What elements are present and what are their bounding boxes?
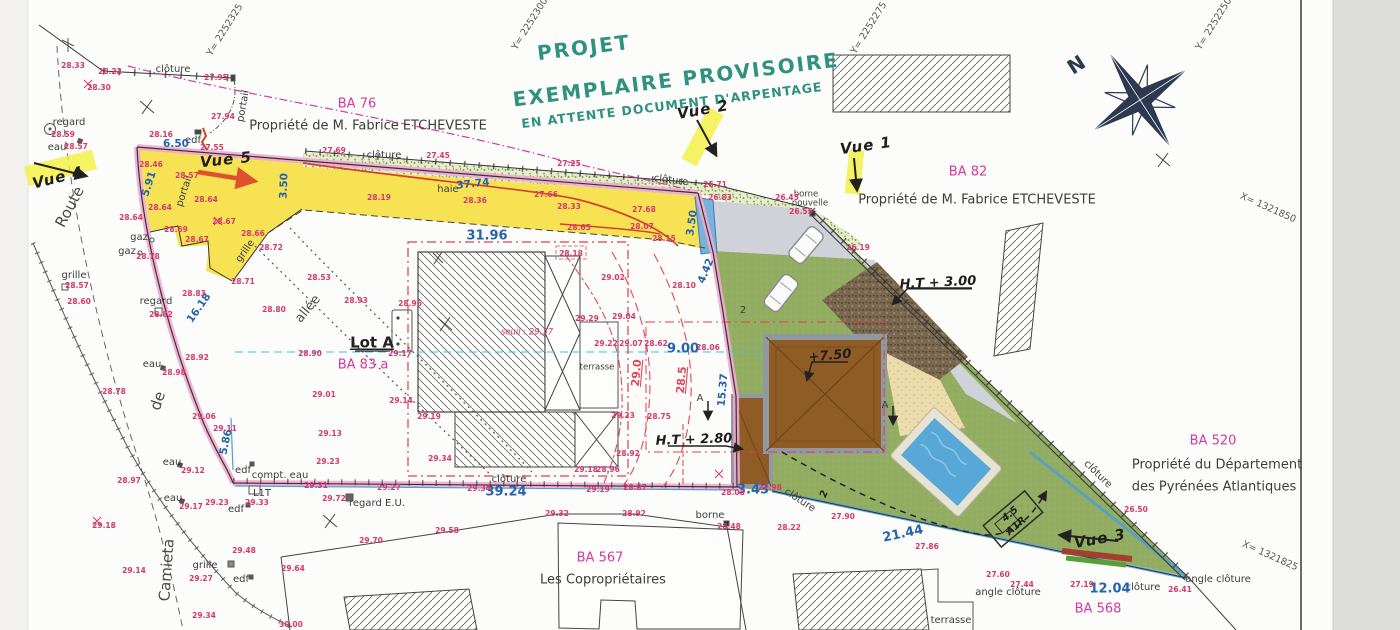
label-29-06: 29.06 (192, 412, 216, 421)
building-top-hatched (833, 55, 1010, 112)
label-28-06: 28.06 (696, 343, 720, 352)
label-28-57: 28.57 (64, 142, 88, 151)
label-28-33: 28.33 (61, 61, 85, 70)
label-26-55: 26.55 (789, 207, 813, 216)
label-28-08: 28.08 (721, 488, 745, 497)
label-29-48: 29.48 (232, 546, 256, 555)
label-ba-82: BA 82 (949, 165, 988, 180)
label-29-01: 29.01 (312, 390, 336, 399)
label-ba-83-a: BA 83 a (338, 358, 389, 373)
label-26-83: 26.83 (708, 193, 732, 202)
label-27-19: 27.19 (1070, 580, 1094, 589)
label-29-33: 29.33 (245, 498, 269, 507)
label-29-34: 29.34 (192, 611, 216, 620)
label-28-16: 28.16 (149, 130, 173, 139)
label-ba-567: BA 567 (577, 551, 624, 566)
label-28-69: 28.69 (164, 225, 188, 234)
label-28-67: 28.67 (185, 235, 209, 244)
label-29-19: 29.19 (586, 485, 610, 494)
label-28-83: 28.83 (182, 289, 206, 298)
label-28-78: 28.78 (102, 387, 126, 396)
label-28-30: 28.30 (87, 83, 111, 92)
scanned-survey-plan: PROJET EXEMPLAIRE PROVISOIRE EN ATTENTE … (0, 0, 1400, 630)
label-a: A (697, 393, 704, 404)
label-29-34: 29.34 (467, 484, 491, 493)
label-compt-eau: compt. eau (252, 470, 309, 481)
label-28-66: 28.66 (241, 229, 265, 238)
label-h-t-2-80: H.T + 2.80 (655, 431, 732, 449)
label-29-17: 29.17 (179, 502, 203, 511)
label-2: 2 (740, 305, 746, 316)
label-27-95: 27.95 (204, 73, 228, 82)
label-28-19: 28.19 (367, 193, 391, 202)
label-27-69: 27.69 (322, 146, 346, 155)
label-28-96: 28.96 (596, 465, 620, 474)
label-29-02: 29.02 (601, 273, 625, 282)
scan-edge-strip (1333, 0, 1400, 630)
label-gaz: gaz (118, 246, 136, 257)
label-28-96: 28.96 (398, 299, 422, 308)
label-28-90: 28.90 (298, 349, 322, 358)
label-29-14: 29.14 (122, 566, 146, 575)
label-regard: regard (140, 296, 173, 307)
label-29-0: 29.0 (629, 359, 644, 388)
label-29-29: 29.29 (575, 314, 599, 323)
label-29-23: 29.23 (205, 498, 229, 507)
label-28-92: 28.92 (616, 449, 640, 458)
label-29-07: 29.07 (619, 339, 643, 348)
label-des-pyr-n-es-atlantiques: des Pyrénées Atlantiques (1132, 480, 1297, 495)
label-edf: edf (235, 465, 252, 476)
label-28-92: 28.92 (185, 353, 209, 362)
label-29-72: 29.72 (322, 494, 346, 503)
label-angle-cl-ture: angle clôture (1185, 573, 1251, 585)
label-propri-t-de-m-fabrice-etcheveste: Propriété de M. Fabrice ETCHEVESTE (249, 119, 487, 134)
label-27-98: 27.98 (758, 483, 782, 492)
label-31-96: 31.96 (466, 229, 507, 244)
label-28-53: 28.53 (307, 273, 331, 282)
label-borne: borne (696, 510, 725, 521)
entry-porch (392, 310, 412, 352)
label-28-57: 28.57 (175, 171, 199, 180)
grille-icon (228, 561, 234, 567)
label-28-64: 28.64 (148, 203, 172, 212)
label-29-58: 29.58 (435, 526, 459, 535)
label-28-22: 28.22 (777, 523, 801, 532)
label-26-19: 26.19 (846, 243, 870, 252)
label-cl-ture: clôture (367, 149, 402, 161)
label-28-64: 28.64 (194, 195, 218, 204)
edf-icon (249, 575, 253, 579)
label-6-50: 6.50 (163, 138, 189, 150)
label-a: A (882, 400, 889, 411)
label-28-98: 28.98 (162, 368, 186, 377)
label-seuil-29-37: seuil : 29.37 (501, 328, 554, 338)
label-27-25: 27.25 (557, 159, 581, 168)
label-29-18: 29.18 (574, 465, 598, 474)
building-ba568-hatched (793, 569, 929, 630)
label-27-66: 27.66 (534, 190, 558, 199)
gate-post-icon (231, 75, 235, 81)
label-28-65: 28.65 (567, 223, 591, 232)
label-28-87: 28.87 (623, 483, 647, 492)
label-eau: eau (163, 457, 182, 468)
label-edf: edf (233, 574, 250, 585)
label-propri-t-de-m-fabrice-etcheveste: Propriété de M. Fabrice ETCHEVESTE (858, 193, 1096, 208)
label-28-18: 28.18 (559, 249, 583, 258)
label-29-13: 29.13 (318, 429, 342, 438)
label-gaz: gaz (130, 232, 148, 243)
label-27-60: 27.60 (986, 570, 1010, 579)
label-9-00: 9.00 (667, 342, 699, 357)
label-ba-520: BA 520 (1190, 434, 1237, 449)
label-28-10: 28.10 (672, 281, 696, 290)
label-28-22: 28.22 (98, 67, 122, 76)
label-28-97: 28.97 (117, 476, 141, 485)
label-27-45: 27.45 (426, 151, 450, 160)
label-28-59: 28.59 (51, 130, 75, 139)
label-regard: regard (53, 117, 86, 128)
label-27-90: 27.90 (831, 512, 855, 521)
label-26-41: 26.41 (1168, 585, 1192, 594)
label-28-78: 28.78 (136, 252, 160, 261)
label-12-04: 12.04 (1089, 582, 1130, 597)
label-29-27: 29.27 (189, 574, 213, 583)
label-28-71: 28.71 (231, 277, 255, 286)
label-29-17: 29.17 (388, 349, 412, 358)
label-29-34: 29.34 (428, 454, 452, 463)
label-29-11: 29.11 (213, 424, 237, 433)
label-28-48: 28.48 (717, 522, 741, 531)
label-29-27: 29.27 (377, 483, 401, 492)
label-grille: grille (62, 270, 87, 281)
label-28-75: 28.75 (647, 412, 671, 421)
label-ba-568: BA 568 (1075, 602, 1122, 617)
label-eau: eau (143, 359, 162, 370)
label-terrasse: terrasse (580, 363, 615, 373)
label-propri-t-du-d-partement: Propriété du Département (1132, 458, 1302, 473)
lot-a-house-extension (455, 412, 575, 467)
label-29-23: 29.23 (611, 411, 635, 420)
label-29-22: 29.22 (594, 339, 618, 348)
label-28-07: 28.07 (630, 222, 654, 231)
label-grille: grille (193, 560, 218, 571)
label-27-55: 27.55 (200, 143, 224, 152)
label-28-67: 28.67 (212, 217, 236, 226)
label-29-32: 29.32 (545, 509, 569, 518)
label-26-45: 26.45 (775, 193, 799, 202)
label-28-15: 28.15 (652, 234, 676, 243)
label-28-93: 28.93 (344, 296, 368, 305)
label-28-46: 28.46 (139, 160, 163, 169)
label-edf: edf (228, 504, 245, 515)
label-29-64: 29.64 (281, 564, 305, 573)
label-29-18: 29.18 (92, 521, 116, 530)
label-27-44: 27.44 (1010, 580, 1034, 589)
label-29-04: 29.04 (612, 312, 636, 321)
label-28-36: 28.36 (463, 196, 487, 205)
site-plan-canvas: PROJET EXEMPLAIRE PROVISOIRE EN ATTENTE … (0, 0, 1400, 630)
label-39-24: 39.24 (485, 485, 526, 500)
label-28-5: 28.5 (674, 366, 689, 394)
gate-post-icon (195, 130, 201, 134)
label-les-copropri-taires: Les Copropriétaires (540, 573, 666, 588)
label-cl-ture: clôture (1126, 581, 1161, 593)
label-28-33: 28.33 (557, 202, 581, 211)
label-26-71: 26.71 (703, 180, 727, 189)
label-28-57: 28.57 (65, 281, 89, 290)
label-28-62: 28.62 (644, 339, 668, 348)
label-28-82: 28.82 (149, 310, 173, 319)
label-regard-e-u: regard E.U. (349, 498, 405, 509)
label-terrasse: terrasse (931, 615, 972, 626)
label-27-94: 27.94 (211, 112, 235, 121)
label-29-19: 29.19 (417, 412, 441, 421)
label-3-50: 3.50 (278, 173, 291, 199)
label-ba-76: BA 76 (338, 97, 377, 112)
label-29-70: 29.70 (359, 536, 383, 545)
label-28-72: 28.72 (259, 243, 283, 252)
label-28-80: 28.80 (262, 305, 286, 314)
label-28-92: 28.92 (622, 509, 646, 518)
label-cl-ture: clôture (156, 63, 191, 75)
lot-a-x-annex (575, 412, 618, 467)
label-29-31: 29.31 (304, 481, 328, 490)
label-27-86: 27.86 (915, 542, 939, 551)
label-27-68: 27.68 (632, 205, 656, 214)
label-cl-ture: clôture (492, 473, 527, 485)
label-26-50: 26.50 (1124, 505, 1148, 514)
label-28-60: 28.60 (67, 297, 91, 306)
label-30-00: 30.00 (279, 620, 303, 629)
gaz-icon (150, 238, 154, 242)
label-29-12: 29.12 (181, 466, 205, 475)
label-29-14: 29.14 (389, 396, 413, 405)
label-28-64: 28.64 (119, 213, 143, 222)
label-29-23: 29.23 (316, 457, 340, 466)
